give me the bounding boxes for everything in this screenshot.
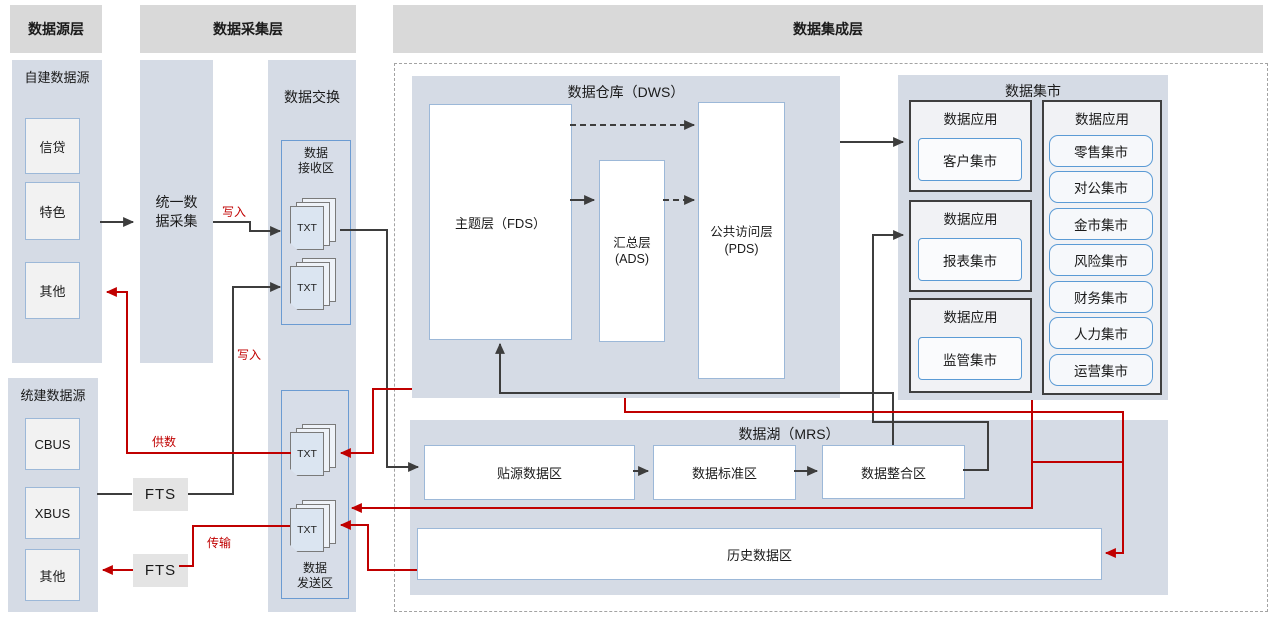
mart-hr: 人力集市 <box>1049 317 1153 349</box>
layer-header-collection: 数据采集层 <box>140 5 356 53</box>
mart-report-label: 报表集市 <box>943 250 997 270</box>
layer-header-source-label: 数据源层 <box>28 19 84 39</box>
app-label: 数据应用 <box>911 208 1030 228</box>
receive-zone-label: 数据 接收区 <box>282 146 350 176</box>
history-zone-label: 历史数据区 <box>727 545 792 564</box>
flow-label-write-1: 写入 <box>222 203 246 220</box>
send-zone-label: 数据 发送区 <box>282 561 348 591</box>
box-cbus: CBUS <box>25 418 80 470</box>
txt-file-icon: TXT <box>290 258 336 312</box>
layer-header-collection-label: 数据采集层 <box>213 19 283 39</box>
txt-file-icon-label: TXT <box>290 206 324 250</box>
data-exchange-title: 数据交换 <box>268 87 356 107</box>
mart-retail-label: 零售集市 <box>1074 141 1128 161</box>
box-standard-zone: 数据标准区 <box>653 445 796 500</box>
mart-retail: 零售集市 <box>1049 135 1153 167</box>
box-special: 特色 <box>25 182 80 240</box>
layer-header-integration: 数据集成层 <box>393 5 1263 53</box>
box-other-gov-label: 其他 <box>39 566 65 585</box>
box-cbus-label: CBUS <box>34 437 70 452</box>
box-xbus: XBUS <box>25 487 80 539</box>
app-label: 数据应用 <box>1044 108 1160 128</box>
box-subject-layer-fds: 主题层（FDS） <box>429 104 572 340</box>
mart-corporate-label: 对公集市 <box>1074 177 1128 197</box>
layer-header-integration-label: 数据集成层 <box>793 19 863 39</box>
summary-layer-label: 汇总层 (ADS) <box>613 235 651 268</box>
architecture-diagram: 数据源层 数据采集层 数据集成层 自建数据源 信贷 特色 其他 统一数 据采集 … <box>0 0 1280 627</box>
public-access-label: 公共访问层 (PDS) <box>710 224 773 257</box>
mart-finance: 财务集市 <box>1049 281 1153 313</box>
source-zone-label: 贴源数据区 <box>497 463 562 482</box>
txt-file-icon-label: TXT <box>290 508 324 552</box>
unified-collection-label: 统一数 据采集 <box>156 193 198 229</box>
txt-file-icon: TXT <box>290 424 336 478</box>
mart-operation: 运营集市 <box>1049 354 1153 386</box>
box-other-self: 其他 <box>25 262 80 319</box>
mart-risk-label: 风险集市 <box>1074 250 1128 270</box>
mart-hr-label: 人力集市 <box>1074 323 1128 343</box>
box-source-zone: 贴源数据区 <box>424 445 635 500</box>
box-summary-layer-ads: 汇总层 (ADS) <box>599 160 665 342</box>
box-credit: 信贷 <box>25 118 80 174</box>
mart-corporate: 对公集市 <box>1049 171 1153 203</box>
fts-box-lower: FTS <box>133 554 188 587</box>
txt-file-icon-label: TXT <box>290 266 324 310</box>
app-box-customer: 数据应用 客户集市 <box>909 100 1032 192</box>
standard-zone-label: 数据标准区 <box>692 463 757 482</box>
mart-gold-label: 金市集市 <box>1074 214 1128 234</box>
mart-regulatory: 监管集市 <box>918 337 1022 380</box>
panel-self-built-sources: 自建数据源 信贷 特色 其他 <box>12 60 102 363</box>
app-label: 数据应用 <box>911 108 1030 128</box>
flow-label-transfer: 传输 <box>207 534 231 551</box>
txt-file-icon: TXT <box>290 198 336 252</box>
mart-risk: 风险集市 <box>1049 244 1153 276</box>
app-box-regulatory: 数据应用 监管集市 <box>909 298 1032 393</box>
box-history-zone: 历史数据区 <box>417 528 1102 580</box>
flow-label-write-2: 写入 <box>237 346 261 363</box>
box-other-self-label: 其他 <box>39 281 65 300</box>
box-other-gov: 其他 <box>25 549 80 601</box>
data-lake-title: 数据湖（MRS） <box>410 424 1168 444</box>
box-credit-label: 信贷 <box>39 137 65 156</box>
panel-self-built-title: 自建数据源 <box>12 67 102 86</box>
mart-customer-label: 客户集市 <box>943 150 997 170</box>
app-label: 数据应用 <box>911 306 1030 326</box>
box-special-label: 特色 <box>39 202 65 221</box>
integration-zone-label: 数据整合区 <box>861 463 926 482</box>
mart-report: 报表集市 <box>918 238 1022 281</box>
mart-customer: 客户集市 <box>918 138 1022 181</box>
panel-gov-built-sources: 统建数据源 CBUS XBUS 其他 <box>8 378 98 612</box>
layer-header-source: 数据源层 <box>10 5 102 53</box>
mart-regulatory-label: 监管集市 <box>943 349 997 369</box>
data-mart-title: 数据集市 <box>898 81 1168 101</box>
box-public-access-pds: 公共访问层 (PDS) <box>698 102 785 379</box>
send-zone-box: 数据 发送区 <box>281 390 349 599</box>
txt-file-icon: TXT <box>290 500 336 554</box>
fts-lower-label: FTS <box>145 562 176 579</box>
flow-label-supply: 供数 <box>152 433 176 450</box>
panel-unified-collection: 统一数 据采集 <box>140 60 213 363</box>
txt-file-icon-label: TXT <box>290 432 324 476</box>
app-box-report: 数据应用 报表集市 <box>909 200 1032 292</box>
mart-operation-label: 运营集市 <box>1074 360 1128 380</box>
dws-title: 数据仓库（DWS） <box>412 82 840 102</box>
subject-layer-label: 主题层（FDS） <box>455 213 546 232</box>
fts-box-upper: FTS <box>133 478 188 511</box>
box-integration-zone: 数据整合区 <box>822 445 965 499</box>
panel-gov-built-title: 统建数据源 <box>8 385 98 404</box>
app-box-business-marts: 数据应用 零售集市 对公集市 金市集市 风险集市 财务集市 人力集市 运营集市 <box>1042 100 1162 395</box>
mart-finance-label: 财务集市 <box>1074 287 1128 307</box>
box-xbus-label: XBUS <box>35 506 70 521</box>
mart-gold: 金市集市 <box>1049 208 1153 240</box>
fts-upper-label: FTS <box>145 486 176 503</box>
